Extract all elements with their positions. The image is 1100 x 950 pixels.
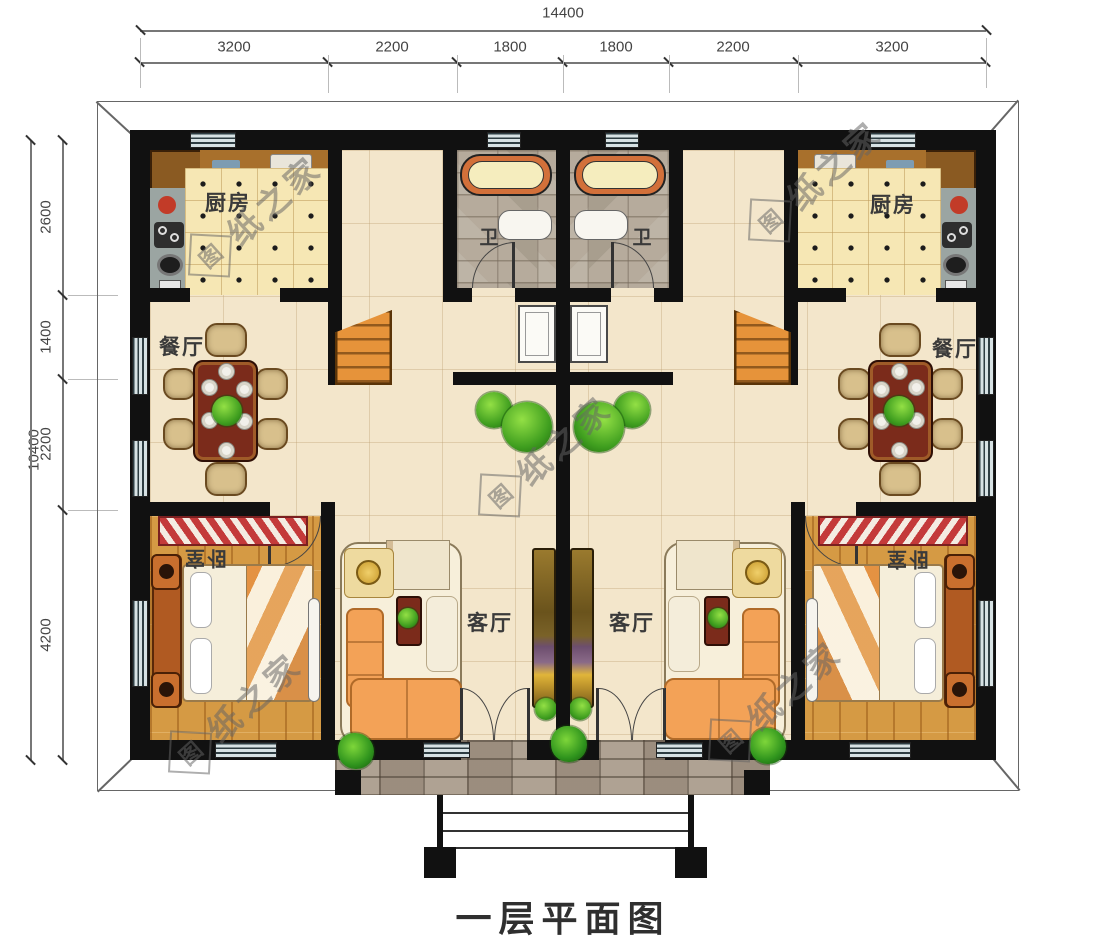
plate [873,381,890,398]
kitchen-pot [943,254,969,276]
dining-chair [255,418,288,450]
wall [784,288,846,302]
dim-ext [140,38,141,88]
hall-door-panel-inner [577,312,601,356]
bed-corner-knob [945,672,975,708]
dim-seg: 3200 [875,39,908,56]
console-table [676,540,740,590]
dining-chair [163,368,196,400]
watermark-seal: 图 [748,198,792,242]
step-line [443,812,688,814]
step-rail [437,795,443,848]
kitchen-vase [950,196,968,214]
pillow [914,638,936,694]
step-line [443,830,688,832]
plate [218,442,235,459]
knob [952,564,967,579]
wall [150,502,270,516]
wall [443,288,472,302]
hall-door-panel [570,305,608,363]
wardrobe [158,516,308,546]
wall [515,288,556,302]
knob [952,682,967,697]
dim-seg: 2200 [716,39,749,56]
plate [218,363,235,380]
entry-pillar [424,847,456,878]
window [487,132,521,148]
window [423,742,470,758]
entry-door-arc [632,688,665,740]
bed-corner-knob [151,672,181,708]
plant [535,698,557,720]
dining-chair [205,323,247,357]
plate [908,379,925,396]
wall [936,288,976,302]
plant [398,608,418,628]
entry-door-leaf [527,688,530,740]
bedroom-bench [308,598,320,702]
stove-burner [158,226,167,235]
window [978,440,994,497]
bathtub [574,154,666,196]
bathroom-door-leaf [512,242,515,288]
bush [551,726,587,762]
window [978,600,994,687]
wall [280,288,342,302]
dim-line [62,140,64,760]
dim-ext [457,55,458,93]
knob [159,682,174,697]
watermark-seal: 图 [478,473,522,517]
wall [669,150,683,302]
dim-seg: 2200 [38,427,55,460]
entry-door-arc [599,688,632,740]
window [132,440,148,497]
entry-door-arc [494,688,527,740]
kitchen-stove [154,222,184,248]
floor-plan-canvas: 14400 3200 2200 1800 1800 2200 3200 1040… [0,0,1100,950]
dim-seg: 1400 [38,320,55,353]
porch-stub [335,770,361,795]
wall [443,150,457,302]
dim-line [140,30,986,32]
room-label-kitchen-right: 厨房 [870,189,916,219]
wall [570,288,611,302]
plate [891,442,908,459]
dining-chair [930,418,963,450]
tv-cabinet [570,548,594,708]
dining-chair [163,418,196,450]
dim-seg: 2200 [375,39,408,56]
dim-ext [669,55,670,93]
dim-seg: 1800 [599,39,632,56]
window [849,742,911,758]
dim-top-total: 14400 [542,5,584,22]
window [978,337,994,395]
wall [654,288,683,302]
dim-seg: 1800 [493,39,526,56]
pillow [190,638,212,694]
plate [236,381,253,398]
entry-door-leaf [597,688,600,740]
watermark-seal: 图 [708,718,752,762]
watermark-seal: 图 [188,233,232,277]
dining-chair [930,368,963,400]
wardrobe [818,516,968,546]
room-label-living-left: 客厅 [467,607,513,637]
dim-ext [986,38,987,88]
room-label-bath-right: 卫 [632,223,653,250]
plate [201,379,218,396]
lamp [745,560,770,585]
room-label-bath-left: 卫 [479,223,500,250]
dim-ext [328,55,329,93]
dining-chair [255,368,288,400]
room-label-living-right: 客厅 [609,607,655,637]
knob [159,564,174,579]
console-table [386,540,450,590]
bed-corner-knob [945,554,975,590]
kitchen-stove [942,222,972,248]
stove-burner [959,226,968,235]
bed-corner-knob [151,554,181,590]
window [656,742,703,758]
sofa-chaise [350,678,462,740]
bathtub-basin [468,161,544,189]
end-table [732,548,782,598]
wall [321,502,335,740]
window [605,132,639,148]
step-line [443,847,688,849]
pillow [914,572,936,628]
bed-mattress [812,564,944,702]
dim-ext [563,55,564,93]
lamp [356,560,381,585]
bathroom-vanity [498,210,552,240]
kitchen-pot [157,254,183,276]
bathroom-door-leaf [612,242,615,288]
plate [891,363,908,380]
plant [708,608,728,628]
end-table [344,548,394,598]
dining-chair [838,368,871,400]
dim-seg: 4200 [38,618,55,651]
staircase [734,310,791,385]
window [190,132,236,148]
dining-chair [205,462,247,496]
bathtub [460,154,552,196]
window [132,600,148,687]
entry-door-arc [461,688,494,740]
dining-chair [879,323,921,357]
hall-door-panel-inner [525,312,549,356]
room-label-bedroom-left: 卧室 [183,546,227,575]
room-label-dining-right: 餐厅 [932,333,978,363]
wall [570,372,673,385]
table-centerpiece [212,396,242,426]
dim-line [30,140,32,760]
dining-chair [879,462,921,496]
dim-seg: 3200 [217,39,250,56]
hall-door-panel [518,305,556,363]
stove-burner [170,233,179,242]
plant [569,698,591,720]
wall [856,502,976,516]
wall [453,372,556,385]
tv-cabinet [532,548,556,708]
room-label-dining-left: 餐厅 [159,331,205,361]
pillow [190,572,212,628]
rug [426,596,458,672]
stove-burner [947,233,956,242]
plan-title: 一层平面图 [455,890,670,942]
staircase [335,310,392,385]
wall [150,288,190,302]
kitchen-vase [158,196,176,214]
window [132,337,148,395]
bathroom-vanity [574,210,628,240]
watermark-seal: 图 [168,730,212,774]
porch-stub [744,770,770,795]
table-centerpiece [884,396,914,426]
bathtub-basin [582,161,658,189]
rug [668,596,700,672]
room-label-bedroom-right: 卧室 [885,547,929,576]
dining-chair [838,418,871,450]
bush [338,733,374,769]
dim-seg: 2600 [38,200,55,233]
dim-ext [798,55,799,93]
step-rail [688,795,694,848]
entry-pillar [675,847,707,878]
